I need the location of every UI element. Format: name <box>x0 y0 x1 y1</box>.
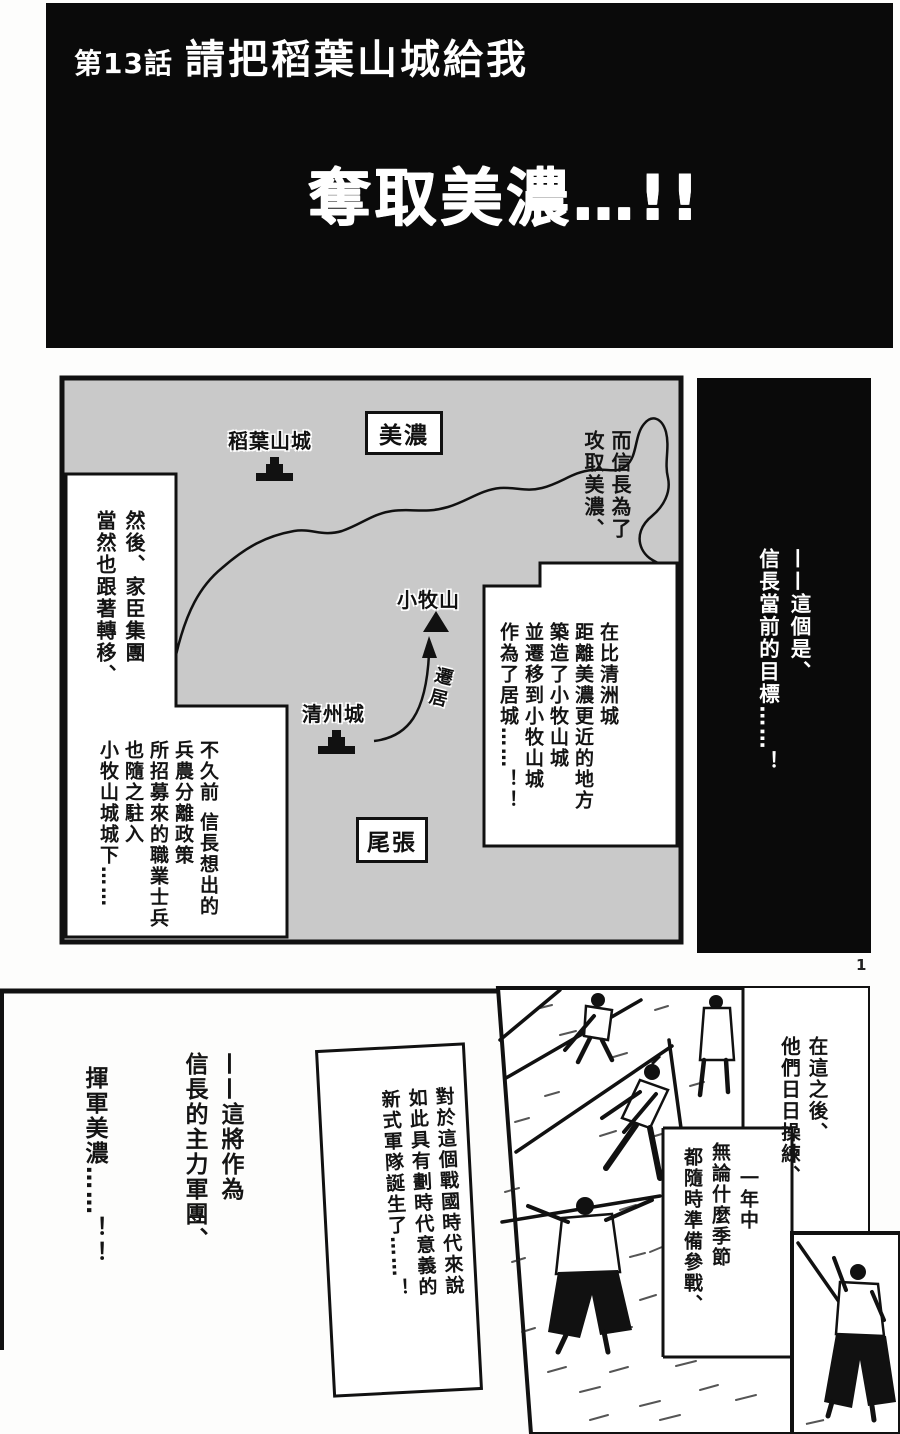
region-label-owari: 尾張 <box>367 823 417 857</box>
region-box-mino: 美濃 <box>365 411 443 455</box>
caption-attack-mino: 而信長為了 攻取美濃、 <box>583 430 630 540</box>
place-label-komakiyama: 小牧山 <box>397 584 460 613</box>
caption-col: 所招募來的職業士兵 <box>148 740 167 929</box>
chapter-title-row: 第13話 請把稻葉山城給我 <box>74 27 529 85</box>
caption-soldiers: 不久前 信長想出的 兵農分離政策 所招募來的職業士兵 也隨之駐入 小牧山城城下…… <box>98 740 217 929</box>
caption-col: 一年中 <box>738 1168 757 1231</box>
caption-col: ——這將作為 <box>218 1052 241 1202</box>
side-note-text: ——這個是、 信長當前的目標……！ <box>757 548 809 773</box>
caption-col: 兵農分離政策 <box>173 740 192 866</box>
caption-col: 距離美濃更近的地方 <box>573 622 592 811</box>
chapter-title: 請把稻葉山城給我 <box>185 27 529 85</box>
caption-col: 然後、家臣集團 <box>124 510 144 664</box>
caption-col: ——這個是、 <box>789 548 810 683</box>
caption-col: 在這之後、 <box>807 1036 827 1144</box>
caption-col: 無論什麼季節 <box>710 1142 729 1268</box>
caption-col: 小牧山城城下…… <box>98 740 117 908</box>
manga-page: 第13話 請把稻葉山城給我 奪取美濃…!! 美濃 尾張 稻葉山城 小牧山 清州城… <box>0 0 900 1434</box>
caption-col: 也隨之駐入 <box>123 740 142 845</box>
caption-col: 如此具有劃時代意義的 <box>406 1087 436 1298</box>
caption-col: 不久前 信長想出的 <box>198 740 217 917</box>
caption-col: 信長當前的目標……！ <box>757 548 778 773</box>
caption-col: 而信長為了 <box>610 430 630 540</box>
caption-box-new-army: 對於這個戰國時代來說 如此具有劃時代意義的 新式軍隊誕生了……！ <box>315 1042 483 1397</box>
caption-col: 作為了居城……！！ <box>498 622 517 811</box>
caption-col: 信長的主力軍團、 <box>182 1052 205 1252</box>
caption-col: 當然也跟著轉移、 <box>95 510 115 686</box>
place-label-inabayama: 稻葉山城 <box>228 425 312 454</box>
region-box-owari: 尾張 <box>356 817 428 863</box>
place-label-kiyosu: 清州城 <box>302 698 365 727</box>
headline-text: 奪取美濃…!! <box>308 147 703 237</box>
caption-col: 對於這個戰國時代來說 <box>433 1086 463 1297</box>
page-number: 1 <box>856 956 866 974</box>
caption-col: 都隨時準備參戰、 <box>682 1147 701 1315</box>
caption-retainers: 然後、家臣集團 當然也跟著轉移、 <box>95 510 144 686</box>
caption-col: 並遷移到小牧山城 <box>523 622 542 790</box>
caption-training: 在這之後、 他們日日操練、 <box>779 1036 826 1187</box>
caption-col: 新式軍隊誕生了……！ <box>379 1089 409 1300</box>
caption-col: 揮軍美濃……！！ <box>82 1066 105 1266</box>
chapter-number: 第13話 <box>74 42 173 82</box>
caption-col: 攻取美濃、 <box>583 430 603 540</box>
narration-march-mino: 揮軍美濃……！！ <box>82 1066 105 1266</box>
caption-col: 在比清洲城 <box>598 622 617 727</box>
caption-build-komaki: 在比清洲城 距離美濃更近的地方 築造了小牧山城 並遷移到小牧山城 作為了居城……… <box>498 622 617 811</box>
caption-col: 築造了小牧山城 <box>548 622 567 769</box>
caption-col: 他們日日操練、 <box>779 1036 799 1187</box>
caption-seasons: 一年中 無論什麼季節 都隨時準備參戰、 <box>682 1142 757 1315</box>
narration-main-force: ——這將作為 信長的主力軍團、 <box>182 1052 241 1252</box>
title-panel: 第13話 請把稻葉山城給我 奪取美濃…!! <box>46 3 893 348</box>
region-label-mino: 美濃 <box>379 416 429 450</box>
